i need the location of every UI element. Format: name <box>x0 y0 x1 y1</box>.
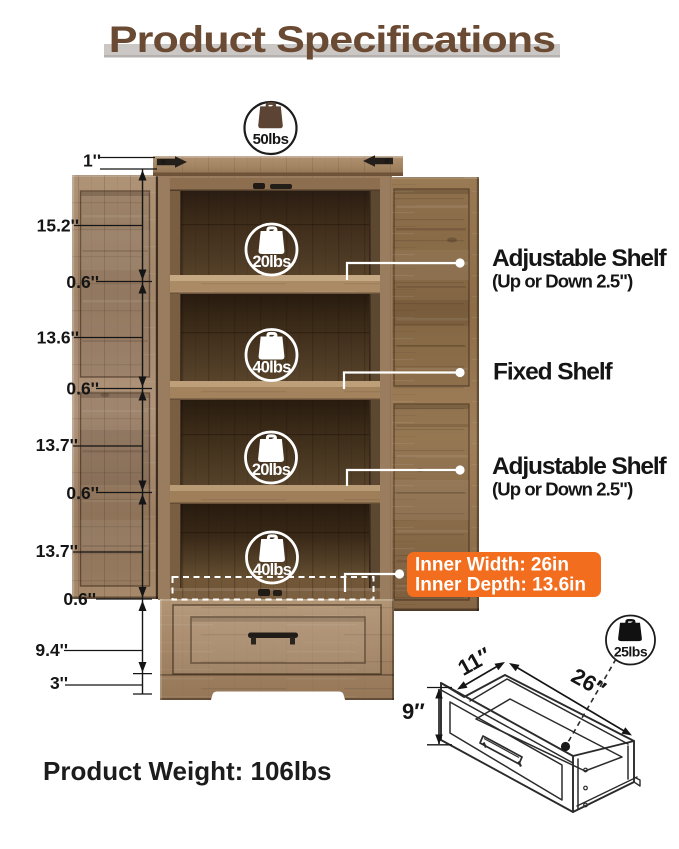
svg-text:13.7'': 13.7'' <box>36 435 78 455</box>
svg-text:9″: 9″ <box>402 699 425 724</box>
svg-text:1'': 1'' <box>83 151 101 171</box>
svg-text:20lbs: 20lbs <box>252 461 291 479</box>
svg-text:40lbs: 40lbs <box>252 358 291 376</box>
svg-text:(Up or Down 2.5"): (Up or Down 2.5") <box>492 479 633 500</box>
svg-text:0.6'': 0.6'' <box>66 379 99 399</box>
svg-text:Product Weight: 106lbs: Product Weight: 106lbs <box>43 756 331 786</box>
svg-text:13.7'': 13.7'' <box>36 541 78 561</box>
svg-text:25lbs: 25lbs <box>614 644 648 660</box>
svg-text:13.6'': 13.6'' <box>37 328 79 348</box>
svg-text:3'': 3'' <box>50 673 68 693</box>
svg-text:0.6'': 0.6'' <box>63 589 96 609</box>
svg-text:Inner Depth: 13.6in: Inner Depth: 13.6in <box>415 575 586 596</box>
svg-text:0.6'': 0.6'' <box>66 483 99 503</box>
svg-text:0.6'': 0.6'' <box>66 272 99 292</box>
svg-text:Inner Width: 26in: Inner Width: 26in <box>415 555 569 576</box>
svg-text:Product Specifications: Product Specifications <box>109 19 555 60</box>
svg-text:26″: 26″ <box>567 663 610 702</box>
svg-text:Adjustable Shelf: Adjustable Shelf <box>492 453 668 480</box>
svg-text:(Up or Down 2.5"): (Up or Down 2.5") <box>492 271 633 292</box>
svg-text:11″: 11″ <box>454 642 496 680</box>
svg-text:Fixed Shelf: Fixed Shelf <box>493 359 614 386</box>
svg-text:15.2'': 15.2'' <box>37 216 79 236</box>
svg-text:9.4'': 9.4'' <box>35 640 68 660</box>
svg-text:40lbs: 40lbs <box>253 561 292 579</box>
svg-text:50lbs: 50lbs <box>253 131 289 148</box>
svg-text:20lbs: 20lbs <box>252 253 291 271</box>
svg-text:Adjustable Shelf: Adjustable Shelf <box>492 245 668 272</box>
